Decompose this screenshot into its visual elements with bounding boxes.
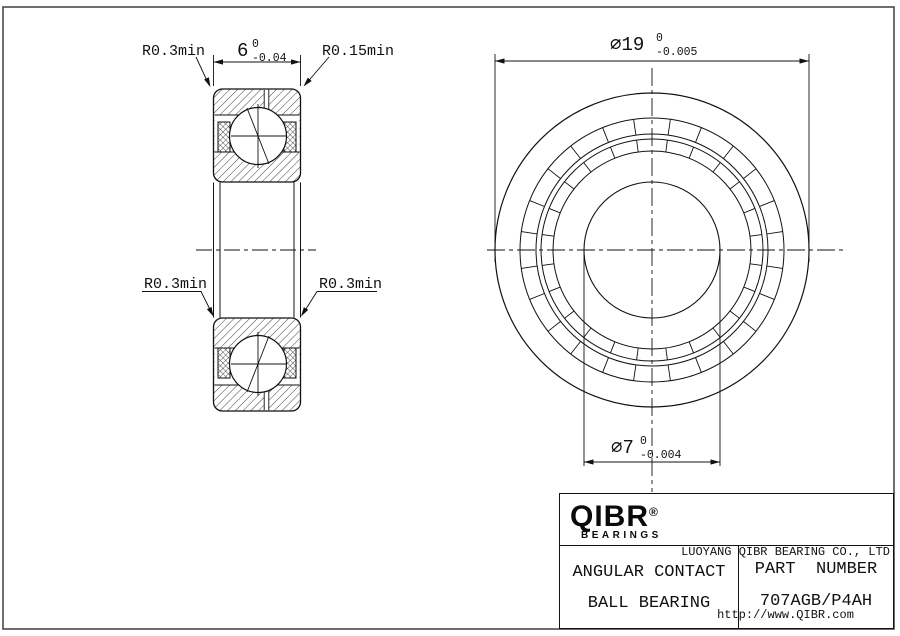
fillet-top-left-label: R0.3min (142, 43, 205, 60)
part-number-label: PART NUMBER (739, 554, 893, 586)
width-arrow-left (214, 59, 224, 64)
bottom-section (214, 318, 301, 411)
cage-rivet-left-bottom (218, 348, 230, 378)
fillet-mid-right-leader (303, 292, 378, 315)
cage-pocket-line (565, 182, 575, 189)
bore-arrow-left (584, 459, 594, 464)
cage-pocket-line (521, 232, 537, 234)
cage-pocket-line (760, 201, 775, 207)
cage-pocket-line (610, 342, 615, 353)
cage-pocket-line (542, 264, 554, 266)
cage-pocket-line (767, 266, 783, 268)
cage-pocket-line (634, 365, 636, 381)
cage-pocket-line (744, 208, 755, 213)
od-tol-top: 0 (656, 32, 663, 45)
cage-pocket-line (548, 169, 561, 179)
cage-pocket-line (760, 294, 775, 300)
fillet-mid-left-label: R0.3min (144, 276, 207, 293)
front-view: ∅19 0 -0.005 ∅7 0 -0.004 (487, 32, 845, 492)
width-arrow-right (291, 59, 301, 64)
cage-pocket-line (750, 235, 762, 237)
fillet-mid-left-arrow (207, 307, 216, 318)
cage-pocket-line (565, 311, 575, 318)
od-arrow-right (800, 58, 810, 63)
cage-pocket-line (668, 119, 670, 135)
product-name-line1: ANGULAR CONTACT (560, 557, 738, 588)
cage-pocket-line (750, 264, 762, 266)
cage-pocket-line (696, 358, 702, 373)
od-tol-bottom: -0.005 (656, 46, 698, 59)
part-number-value: 707AGB/P4AH (739, 586, 893, 618)
cage-pocket-line (530, 294, 545, 300)
title-block-header: QIBR® BEARINGS LUOYANG QIBR BEARING CO.,… (560, 494, 893, 546)
cage-pocket-line (610, 147, 615, 158)
fillet-mid-right-label: R0.3min (319, 276, 382, 293)
logo-registered-icon: ® (649, 505, 659, 519)
cage-pocket-line (571, 341, 581, 354)
logo-text: QIBR (570, 500, 649, 533)
company-logo: QIBR® BEARINGS (560, 494, 678, 545)
cage-pocket-line (584, 163, 591, 173)
logo-wordmark: QIBR® (570, 497, 678, 532)
bore-value: ∅7 (611, 437, 634, 459)
width-tol-top: 0 (252, 38, 259, 51)
cage-pocket-line (637, 140, 639, 152)
cage-pocket-line (743, 169, 756, 179)
cage-pocket-line (549, 208, 560, 213)
logo-bearings-text: BEARINGS (570, 530, 678, 541)
width-tol-bottom: -0.04 (252, 52, 287, 65)
cage-pocket-line (637, 348, 639, 360)
product-name-line2: BALL BEARING (560, 588, 738, 619)
cage-pocket-line (571, 146, 581, 159)
cage-pocket-line (521, 266, 537, 268)
cage-pocket-line (743, 321, 756, 331)
cage-pocket-line (730, 182, 740, 189)
cage-pocket-line (542, 235, 554, 237)
cage-pocket-line (689, 342, 694, 353)
cage-pocket-line (723, 146, 733, 159)
cage-pocket-line (668, 365, 670, 381)
title-block: QIBR® BEARINGS LUOYANG QIBR BEARING CO.,… (559, 493, 894, 629)
cage-pocket-line (549, 287, 560, 292)
drawing-sheet: 6 0 -0.04 R0.3min R0.15min R0.3min R0.3m… (0, 0, 900, 636)
od-value: ∅19 (610, 34, 644, 56)
cage-pocket-line (634, 119, 636, 135)
bore-tol-bottom: -0.004 (640, 449, 682, 462)
cross-section-view: 6 0 -0.04 R0.3min R0.15min R0.3min R0.3m… (142, 38, 394, 411)
bore-arrow-right (711, 459, 721, 464)
title-block-body: ANGULAR CONTACT BALL BEARING PART NUMBER… (560, 546, 893, 628)
product-name-cell: ANGULAR CONTACT BALL BEARING (560, 546, 739, 628)
width-dimension: 6 0 -0.04 (214, 38, 301, 86)
cage-rivet-left-top (218, 122, 230, 152)
cage-pocket-line (723, 341, 733, 354)
company-info: LUOYANG QIBR BEARING CO., LTD http://www… (678, 494, 893, 545)
cage-pocket-line (666, 140, 668, 152)
fillet-top-right-label: R0.15min (322, 43, 394, 60)
cage-pocket-line (730, 311, 740, 318)
cage-pocket-line (530, 201, 545, 207)
cage-pocket-line (744, 287, 755, 292)
cage-pocket-line (666, 348, 668, 360)
fillet-mid-left-leader (142, 292, 213, 315)
cage-pocket-line (603, 358, 609, 373)
cage-pocket-line (603, 128, 609, 143)
cage-pocket-line (696, 128, 702, 143)
width-value: 6 (237, 40, 248, 62)
cage-pocket-line (713, 163, 720, 173)
cage-pocket-line (548, 321, 561, 331)
cage-pocket-line (713, 328, 720, 338)
cage-pocket-line (584, 328, 591, 338)
top-section (214, 89, 301, 182)
od-arrow-left (495, 58, 505, 63)
bore-tol-top: 0 (640, 435, 647, 448)
cage-pocket-line (689, 147, 694, 158)
part-number-cell: PART NUMBER 707AGB/P4AH (739, 546, 893, 628)
cage-pocket-line (767, 232, 783, 234)
fillet-top-left-arrow (204, 77, 213, 88)
